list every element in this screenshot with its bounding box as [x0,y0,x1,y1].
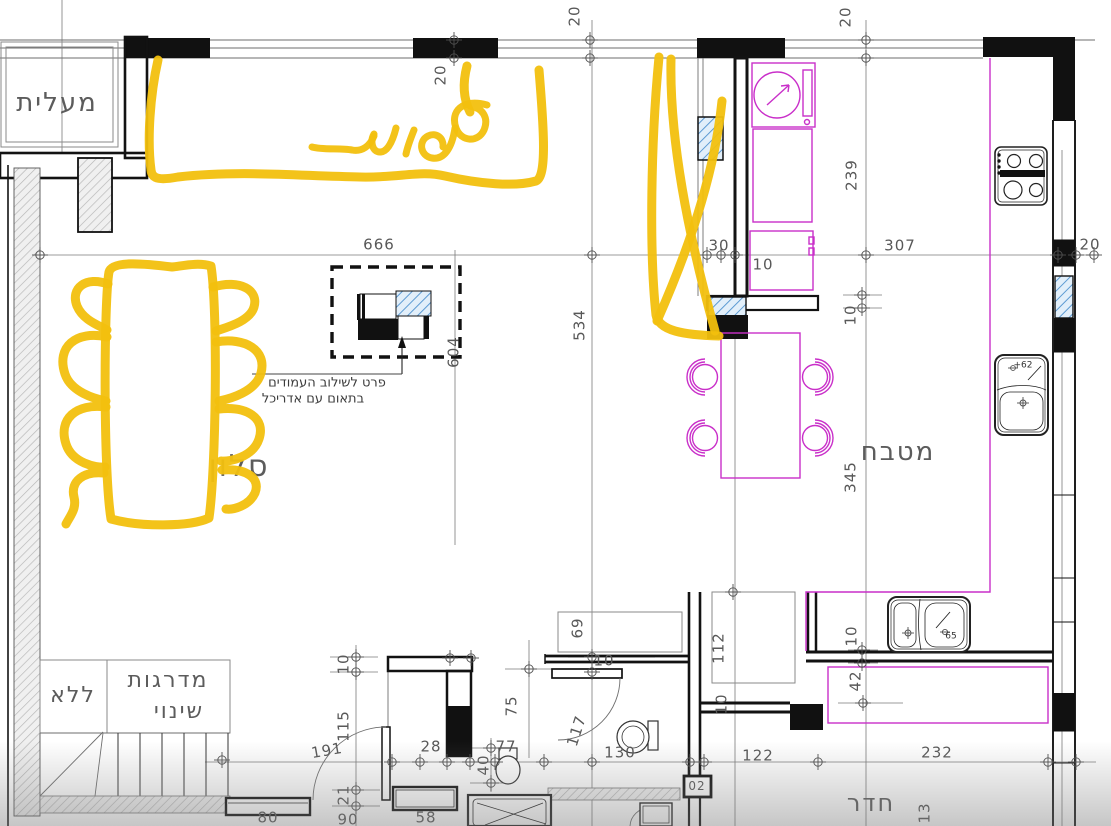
dim-label: 10 [337,653,352,674]
tiny-label: +62 [1014,362,1033,371]
dim-label: 21 [337,784,352,805]
room-label: מטבח [861,439,936,465]
dim-label: 345 [844,461,859,493]
dim-label: 02 [688,780,705,792]
dim-label: 10 [593,654,614,669]
dim-label: 80 [257,811,278,826]
dim-label: 130 [604,746,636,761]
dim-label: 90 [337,813,358,826]
dim-label: 10 [715,693,730,714]
note-label: בתאום עם אדריכל [262,393,364,406]
dim-label: 307 [884,239,916,254]
dim-label: 239 [845,159,860,191]
note-label: פרט לשילוב העמודים [268,377,386,390]
dim-label: 10 [844,304,859,325]
dim-label: 117 [565,714,589,749]
dim-label: 20 [434,64,449,85]
room-label: מדרגות [128,670,209,692]
room-label: ללא [50,685,96,707]
dim-label: 69 [571,617,586,638]
dim-label: 20 [1079,238,1100,253]
dim-label: 40 [477,754,492,775]
dim-label: 191 [310,741,344,761]
labels-layer: מעליתסלוןמטבחחדרללאמדרגותשינויפרט לשילוב… [0,0,1111,826]
dim-label: 10 [845,625,860,646]
dim-label: 666 [363,238,395,253]
room-label: חדר [847,791,895,815]
dim-label: 112 [712,632,727,664]
dim-label: 77 [495,740,516,755]
dim-label: 115 [337,710,352,742]
room-label: סלון [209,452,270,482]
dim-label: 534 [573,309,588,341]
dim-label: 122 [742,749,774,764]
dim-label: 10 [752,258,773,273]
dim-label: 58 [415,811,436,826]
dim-label: 75 [505,695,520,716]
tiny-label: 65 [945,633,956,642]
dim-label: 232 [921,746,953,761]
room-label: שינוי [154,701,204,723]
dim-label: 20 [568,5,583,26]
room-label: מעלית [16,90,98,116]
dim-label: 42 [849,670,864,691]
floor-plan-canvas: מעליתסלוןמטבחחדרללאמדרגותשינויפרט לשילוב… [0,0,1111,826]
dim-label: 604 [447,336,462,368]
dim-label: 20 [839,6,854,27]
dim-label: 13 [918,802,933,823]
dim-label: 30 [708,239,729,254]
dim-label: 28 [420,740,441,755]
